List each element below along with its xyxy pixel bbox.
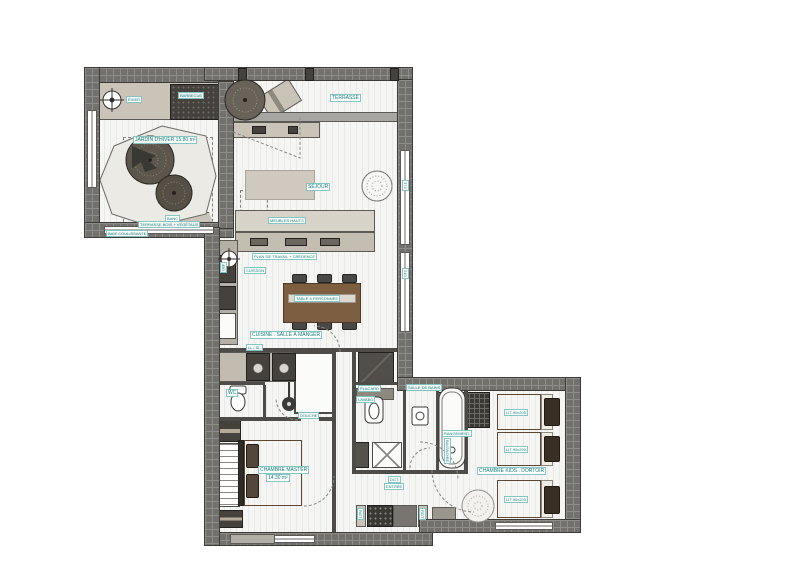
kids-bed-2-pillow bbox=[544, 436, 560, 462]
label-lit3: LIT 90x200 bbox=[504, 496, 528, 503]
label-sejour: SÉJOUR bbox=[306, 183, 330, 191]
kids-bed-3-pillow bbox=[544, 486, 560, 514]
label-dim-right-2: 240 bbox=[402, 268, 409, 279]
label-meuble-haut: MEUBLES HAUTS bbox=[268, 217, 306, 224]
label-plan-travail: PLAN DE TRAVAIL + CRÉDENCE bbox=[252, 253, 317, 260]
label-table: TABLE 8 PERSONNES bbox=[294, 295, 340, 302]
label-lit2: LIT 90x200 bbox=[504, 446, 528, 453]
dining-chair bbox=[292, 274, 307, 283]
partition-bath-2 bbox=[436, 385, 439, 472]
partition-hall-master bbox=[332, 352, 336, 534]
window-kids-bottom bbox=[495, 522, 553, 530]
shoe-rack bbox=[367, 505, 393, 527]
terrace-post bbox=[305, 68, 314, 81]
window-winter-garden-left bbox=[87, 110, 97, 188]
shower-room-enclosure bbox=[294, 352, 334, 414]
label-baignoire: BAIGNOIRE bbox=[444, 438, 451, 464]
label-rangement: RANGEMENT bbox=[442, 430, 472, 437]
washing-machine bbox=[246, 353, 270, 381]
label-dim-left: 450 bbox=[220, 262, 227, 273]
label-winter-sub: TERRASSE BOIS + VÉGÉTAUX bbox=[138, 221, 200, 228]
sideboard-object bbox=[288, 126, 298, 134]
hall-cabinet bbox=[393, 505, 417, 527]
dining-chair bbox=[342, 274, 357, 283]
terrace-post bbox=[238, 68, 247, 81]
partition-bath-bottom bbox=[352, 470, 468, 474]
counter-appliance bbox=[285, 238, 307, 246]
label-dim-right-1: 372 bbox=[402, 180, 409, 191]
wall-wing-right bbox=[566, 378, 580, 532]
partition-bath-left bbox=[352, 352, 356, 474]
kids-bed-1-pillow bbox=[544, 398, 560, 426]
label-cuisson: CUISSON bbox=[244, 267, 266, 274]
wall-nw-divider bbox=[219, 82, 233, 228]
master-pillow bbox=[246, 444, 259, 468]
glazed-band-living bbox=[219, 112, 398, 122]
label-winter-garden: JARDIN D'HIVER 15.80 m² bbox=[133, 136, 197, 144]
label-sdb: SALLE DE BAINS bbox=[406, 384, 442, 391]
wall-left-lower bbox=[205, 228, 219, 545]
label-rgt-right: RGT bbox=[419, 508, 426, 520]
dining-chair bbox=[317, 274, 332, 283]
dresser bbox=[219, 420, 241, 442]
living-rug bbox=[245, 170, 315, 200]
label-terrasse: TERRASSE bbox=[330, 94, 361, 102]
terrace-post bbox=[390, 68, 399, 81]
partition-bath-1 bbox=[403, 385, 406, 472]
dresser-2 bbox=[219, 510, 243, 528]
label-cuisine: CUISINE . SALLE À MANGER bbox=[250, 331, 322, 339]
master-pillow bbox=[246, 474, 259, 498]
shower-tray bbox=[372, 442, 402, 468]
label-placard: PLACARD bbox=[358, 385, 381, 392]
label-barbecue: BARBECUE bbox=[178, 92, 204, 99]
label-rgt-left: RGT bbox=[357, 508, 364, 520]
window-living-right bbox=[400, 150, 410, 245]
floor-plan: JARDIN D'HIVER 15.80 m² TERRASSE BOIS + … bbox=[0, 0, 800, 565]
label-lave-linge: LL / SL bbox=[246, 344, 263, 351]
barbecue-grill bbox=[170, 84, 219, 120]
label-lit1: LIT 90x200 bbox=[504, 409, 528, 416]
label-wc: WC bbox=[226, 389, 238, 397]
window-dining-right bbox=[400, 252, 410, 332]
label-douche: DOUCHE bbox=[298, 412, 319, 419]
entry-closet bbox=[358, 352, 394, 384]
label-master-area: 14.30 m² bbox=[266, 474, 290, 482]
sideboard-object bbox=[252, 126, 266, 134]
partition-master-top-a bbox=[219, 417, 301, 421]
counter-appliance bbox=[320, 238, 340, 246]
sideboard bbox=[225, 122, 320, 138]
label-master: CHAMBRE MASTER bbox=[258, 466, 309, 474]
partition-wc-top bbox=[219, 382, 265, 385]
label-baie: BAIE COULISSANTE bbox=[106, 230, 148, 237]
label-kids: CHAMBRE KIDS . DORTOIR bbox=[477, 467, 546, 475]
label-evier: ÉVIER bbox=[126, 96, 142, 103]
partition-wc-right bbox=[263, 385, 266, 419]
dining-table bbox=[283, 283, 361, 323]
label-bench: BANC bbox=[165, 215, 180, 222]
partition-master-top-b bbox=[319, 417, 334, 421]
label-dgt: DGT. bbox=[388, 476, 401, 483]
doormat bbox=[230, 534, 275, 544]
dryer bbox=[272, 353, 296, 381]
bath-cabinet bbox=[355, 442, 369, 468]
wardrobe bbox=[216, 443, 240, 507]
label-lavabo: LAVABO bbox=[356, 396, 375, 403]
label-entree: ENTRÉE bbox=[384, 483, 404, 490]
counter-appliance bbox=[250, 238, 268, 246]
